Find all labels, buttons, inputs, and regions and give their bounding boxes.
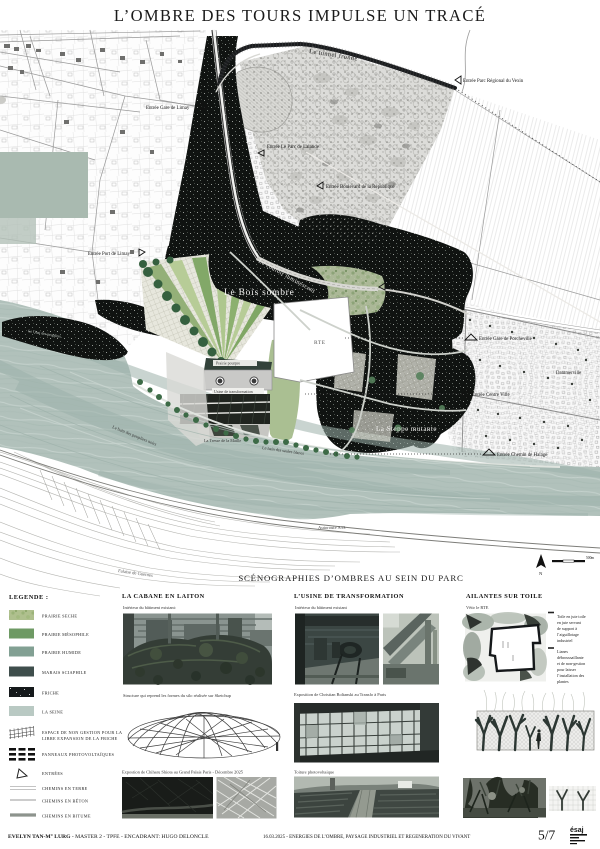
svg-text:AILANTES SUR TOILE: AILANTES SUR TOILE [466, 593, 543, 600]
svg-text:16.03.2025 - ENERGIES DE L’OM: 16.03.2025 - ENERGIES DE L’OMBRE, PAYSAG… [263, 835, 470, 840]
svg-text:PRAIRIE HUMIDE: PRAIRIE HUMIDE [42, 650, 81, 655]
svg-text:Dammerville: Dammerville [556, 371, 581, 376]
svg-text:Entrée Parc Régional du Vexin: Entrée Parc Régional du Vexin [463, 79, 524, 84]
svg-text:SCÉNOGRAPHIES D’OMBRES AU SEIN: SCÉNOGRAPHIES D’OMBRES AU SEIN DU PARC [238, 573, 463, 583]
svg-text:Prairie pourpre: Prairie pourpre [216, 361, 240, 366]
svg-text:PRAIRIE SECHE: PRAIRIE SECHE [42, 614, 77, 619]
svg-text:Entrée Gare de Porcheville: Entrée Gare de Porcheville [479, 337, 532, 342]
svg-text:500m: 500m [586, 556, 594, 560]
svg-text:l’aiguillotage: l’aiguillotage [557, 632, 579, 637]
svg-text:La Tresse de la Maille: La Tresse de la Maille [204, 438, 241, 443]
svg-text:Intérieur du bâtiment existant: Intérieur du bâtiment existant: [123, 605, 176, 610]
svg-text:Exposition de Christian Boltan: Exposition de Christian Boltanski au Tra… [294, 692, 386, 697]
svg-text:ESPACE DE NON GESTION POUR LA: ESPACE DE NON GESTION POUR LA [42, 730, 123, 735]
svg-text:CHEMINS EN TERRE: CHEMINS EN TERRE [42, 786, 88, 791]
svg-text:Structure qui reprend les form: Structure qui reprend les formes du silo… [123, 693, 232, 698]
svg-text:Lianes: Lianes [557, 649, 568, 654]
svg-text:Entrée Centre Ville: Entrée Centre Ville [472, 393, 510, 398]
svg-text:FRICHE: FRICHE [42, 691, 59, 696]
svg-text:CHEMINS EN BÉTON: CHEMINS EN BÉTON [42, 799, 88, 804]
svg-text:Toiture photovoltaique: Toiture photovoltaique [294, 770, 334, 775]
svg-text:Toile en jute toile: Toile en jute toile [557, 614, 586, 619]
svg-text:Le Bois sombre: Le Bois sombre [224, 288, 295, 298]
svg-text:RTE: RTE [314, 340, 326, 346]
svg-text:LA SEINE: LA SEINE [42, 710, 63, 715]
svg-text:Intérieur du bâtiment existant: Intérieur du bâtiment existant [295, 605, 348, 610]
svg-text:industriel: industriel [557, 638, 573, 643]
svg-text:Vêtir le RTE: Vêtir le RTE [466, 605, 489, 610]
svg-text:PRAIRIE MÉSOPHILE: PRAIRIE MÉSOPHILE [42, 632, 89, 637]
svg-text:LA CABANE EN LAITON: LA CABANE EN LAITON [122, 593, 205, 600]
svg-text:EVELYN TAN-M° LURG - MASTER 2: EVELYN TAN-M° LURG - MASTER 2 - TPFE - E… [8, 833, 209, 840]
svg-text:LIBRE EXPANSION DE LA FRICHE: LIBRE EXPANSION DE LA FRICHE [42, 736, 118, 741]
svg-text:LEGENDE :: LEGENDE : [9, 594, 48, 601]
svg-text:Entrée Principale: Entrée Principale [388, 285, 422, 290]
svg-text:en jute servant: en jute servant [557, 620, 582, 625]
svg-text:l’installation des: l’installation des [557, 673, 585, 678]
svg-text:Autoroute A13: Autoroute A13 [318, 525, 346, 530]
svg-text:ésaj: ésaj [570, 827, 584, 834]
svg-text:ENTRÉES: ENTRÉES [42, 771, 63, 776]
svg-text:MARAIS SCIAPHILE: MARAIS SCIAPHILE [42, 670, 87, 675]
svg-text:Entrée Port de Limay: Entrée Port de Limay [88, 252, 131, 257]
svg-text:pour laisser: pour laisser [557, 667, 577, 672]
svg-text:L’USINE DE TRANSFORMATION: L’USINE DE TRANSFORMATION [294, 593, 404, 600]
svg-text:Entrée Chemin de Halage: Entrée Chemin de Halage [497, 453, 547, 458]
svg-text:de support à: de support à [557, 626, 577, 631]
svg-text:PANNEAUX PHOTOVOLTAÏQUES: PANNEAUX PHOTOVOLTAÏQUES [42, 752, 115, 757]
svg-text:Usine de transformation: Usine de transformation [214, 389, 253, 394]
svg-text:débroussaillante: débroussaillante [557, 655, 584, 660]
svg-text:Entrée Gare de Limay: Entrée Gare de Limay [146, 106, 190, 111]
svg-text:Entrée Le Parc de Lalande: Entrée Le Parc de Lalande [267, 145, 319, 150]
svg-text:La Steppe mutante: La Steppe mutante [376, 425, 437, 433]
svg-text:Entrée Boulevard de la Républi: Entrée Boulevard de la République [326, 185, 395, 190]
svg-text:CHEMINS EN BITUME: CHEMINS EN BITUME [42, 814, 91, 819]
svg-text:et de non-gestion: et de non-gestion [557, 661, 585, 666]
svg-text:Expostion de Chiharu Shiota au: Expostion de Chiharu Shiota au Grand Pal… [122, 770, 244, 775]
svg-text:plantes: plantes [557, 679, 569, 684]
svg-text:L’OMBRE DES TOURS IMPULSE UN T: L’OMBRE DES TOURS IMPULSE UN TRACÉ [114, 6, 486, 25]
svg-text:5/7: 5/7 [538, 828, 556, 843]
